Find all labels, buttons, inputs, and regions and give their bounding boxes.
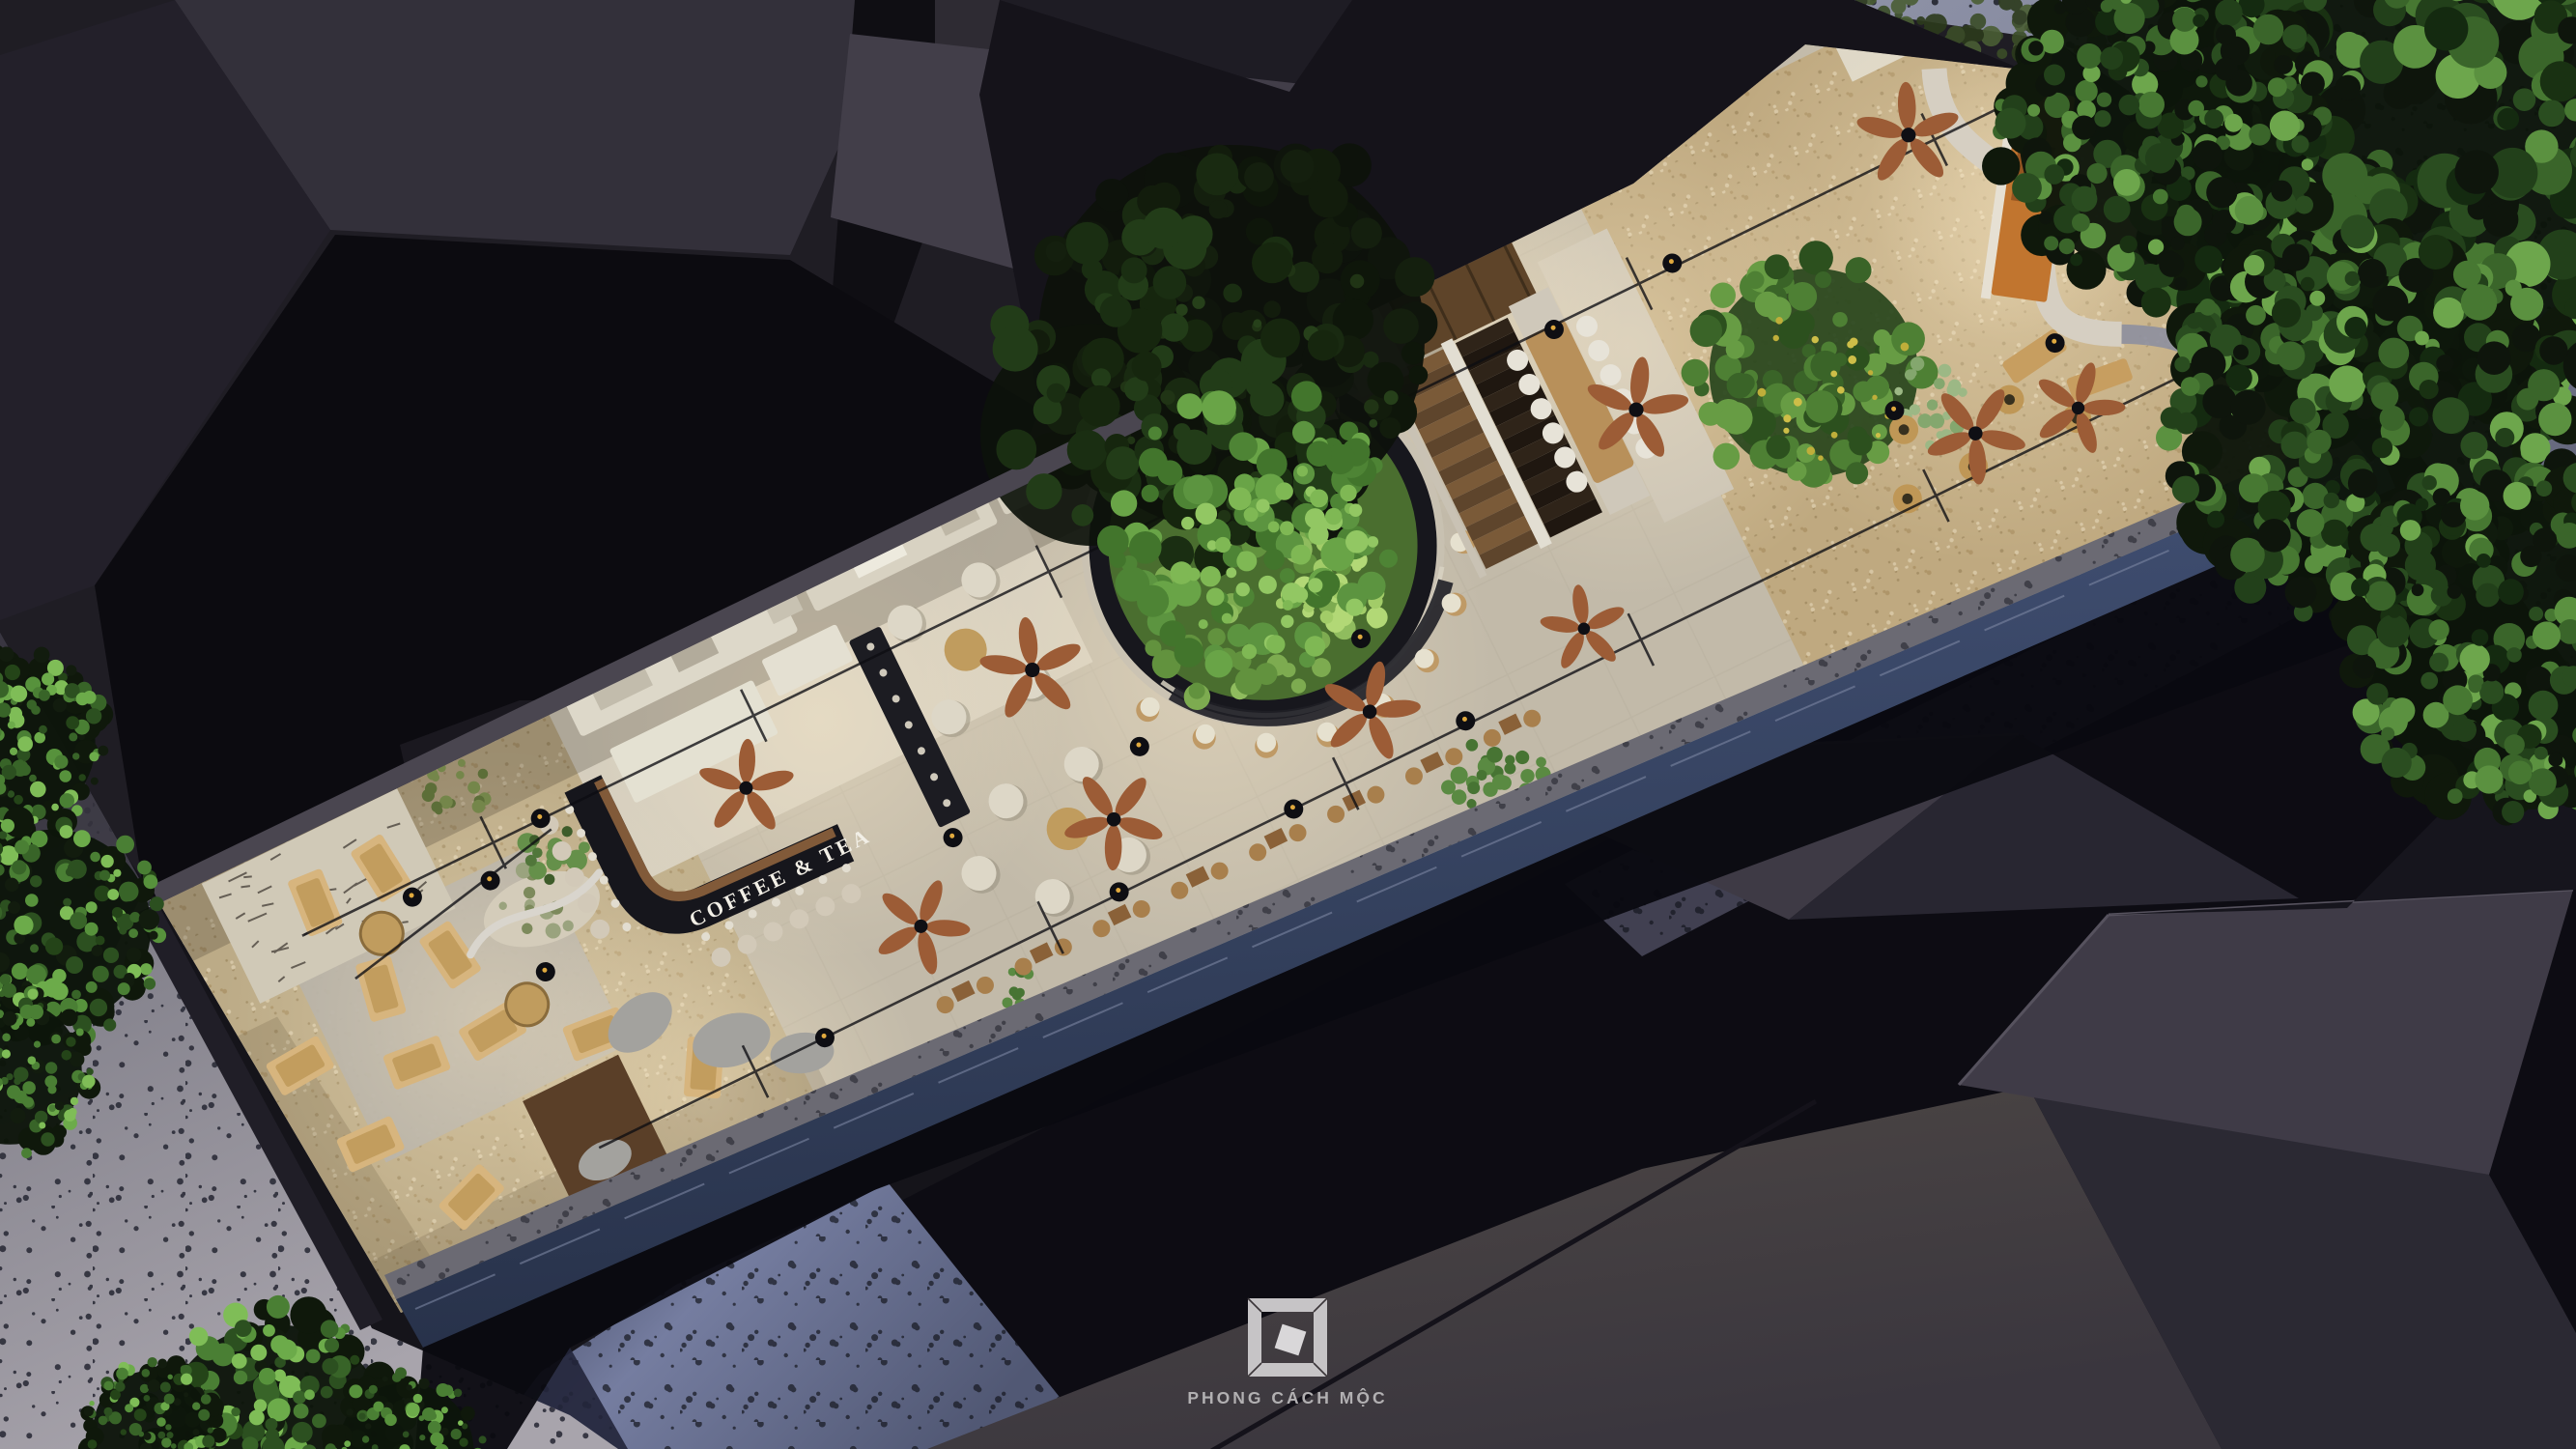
svg-text:PHONG CÁCH MỘC: PHONG CÁCH MỘC: [1187, 1387, 1387, 1407]
